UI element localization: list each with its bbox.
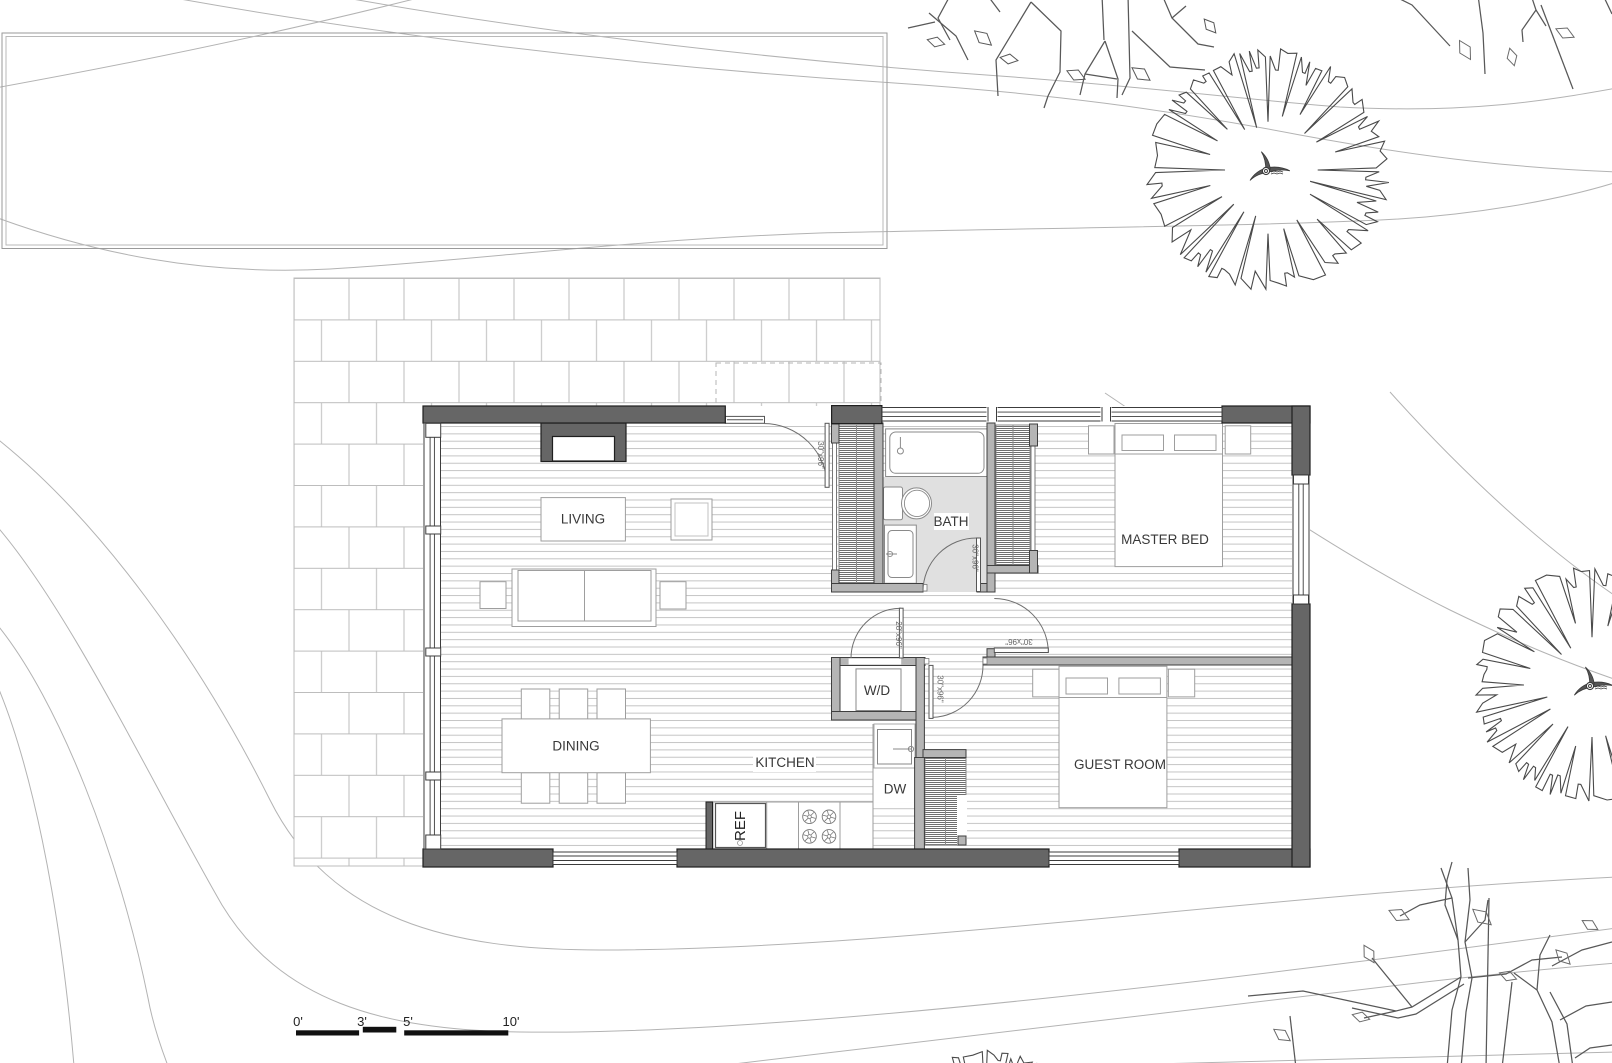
svg-text:BATH: BATH bbox=[933, 514, 968, 529]
svg-text:REF: REF bbox=[732, 811, 749, 841]
svg-text:DW: DW bbox=[884, 782, 907, 797]
svg-text:30"x96": 30"x96" bbox=[816, 441, 825, 469]
svg-text:KITCHEN: KITCHEN bbox=[755, 755, 814, 770]
svg-text:DINING: DINING bbox=[552, 739, 599, 754]
svg-text:10': 10' bbox=[503, 1014, 520, 1029]
svg-text:W/D: W/D bbox=[864, 683, 890, 698]
svg-text:0': 0' bbox=[293, 1014, 303, 1029]
svg-text:30"x96": 30"x96" bbox=[1005, 637, 1033, 646]
svg-text:3': 3' bbox=[357, 1014, 367, 1029]
svg-text:30"x96": 30"x96" bbox=[936, 675, 945, 703]
svg-text:5': 5' bbox=[403, 1014, 413, 1029]
svg-text:MASTER BED: MASTER BED bbox=[1121, 532, 1209, 547]
svg-text:28"x96": 28"x96" bbox=[894, 621, 903, 649]
svg-text:LIVING: LIVING bbox=[561, 512, 605, 527]
svg-text:GUEST ROOM: GUEST ROOM bbox=[1074, 757, 1166, 772]
svg-text:30"x96": 30"x96" bbox=[971, 544, 980, 572]
